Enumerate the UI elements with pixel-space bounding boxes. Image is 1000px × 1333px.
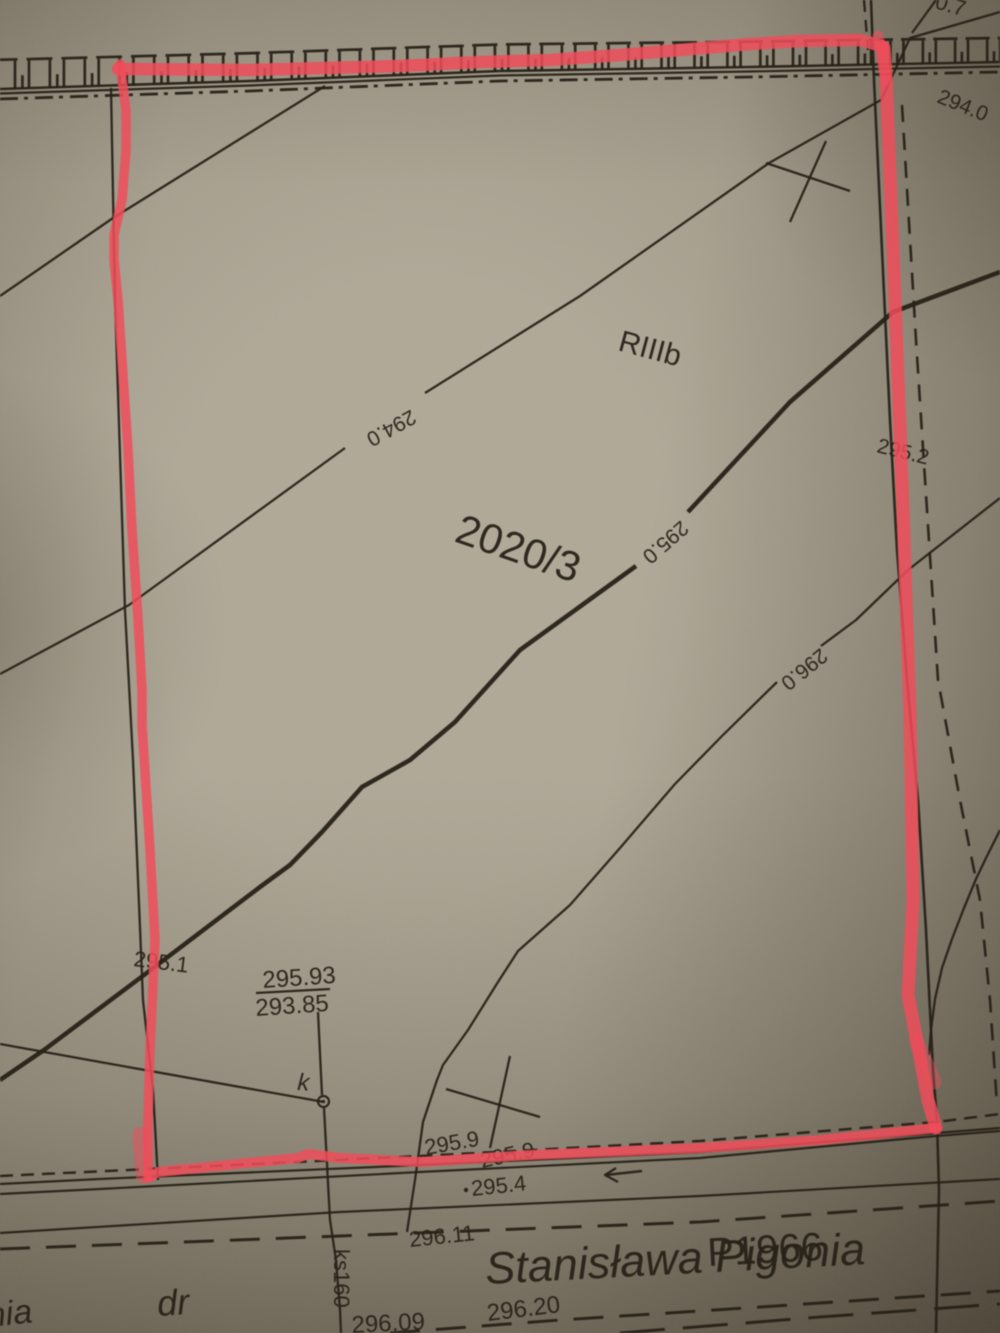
svg-text:296.09: 296.09 [351,1308,426,1333]
svg-text:P1966: P1966 [706,1225,824,1275]
svg-text:ks160: ks160 [329,1249,354,1308]
svg-text:293.85: 293.85 [255,990,330,1022]
svg-text:nia: nia [0,1292,34,1333]
svg-text:dr: dr [156,1281,193,1324]
